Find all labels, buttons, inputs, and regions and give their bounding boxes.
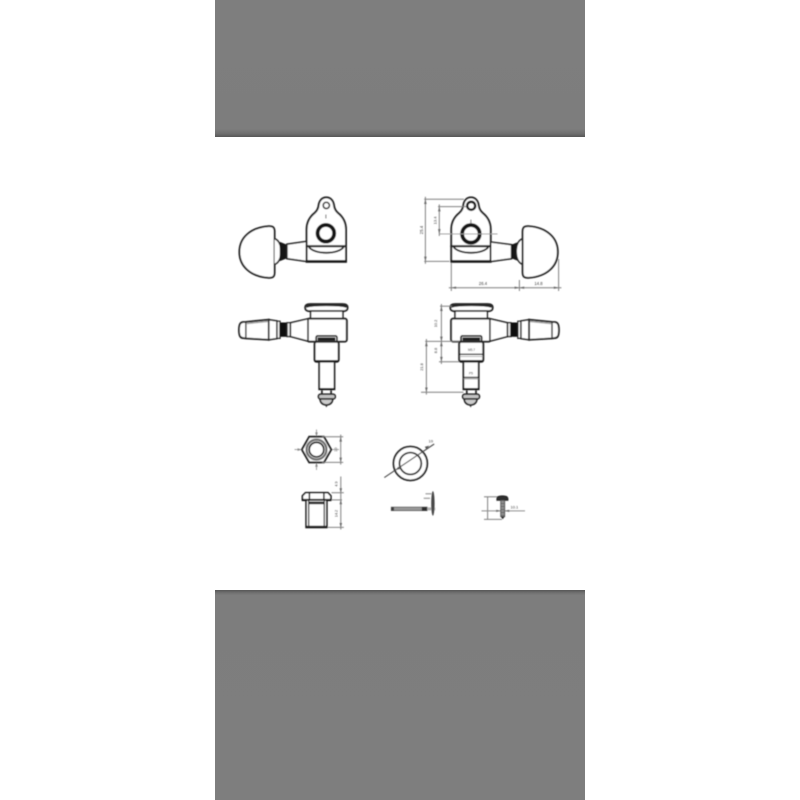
svg-text:13.4: 13.4 — [432, 216, 437, 225]
svg-text:10: 10 — [334, 447, 338, 451]
svg-text:21.8: 21.8 — [419, 363, 424, 371]
svg-text:8.8: 8.8 — [433, 348, 438, 353]
svg-text:10.1: 10.1 — [511, 505, 520, 510]
svg-text:P5: P5 — [469, 371, 473, 375]
svg-text:M5.7: M5.7 — [468, 348, 475, 352]
svg-text:26.4: 26.4 — [479, 281, 488, 286]
svg-text:14.8: 14.8 — [534, 281, 543, 286]
svg-text:25.4: 25.4 — [419, 225, 424, 234]
svg-text:19: 19 — [428, 438, 433, 443]
svg-text:10.2: 10.2 — [433, 320, 438, 328]
svg-text:14.2: 14.2 — [334, 510, 338, 517]
svg-text:4.9: 4.9 — [334, 481, 338, 486]
